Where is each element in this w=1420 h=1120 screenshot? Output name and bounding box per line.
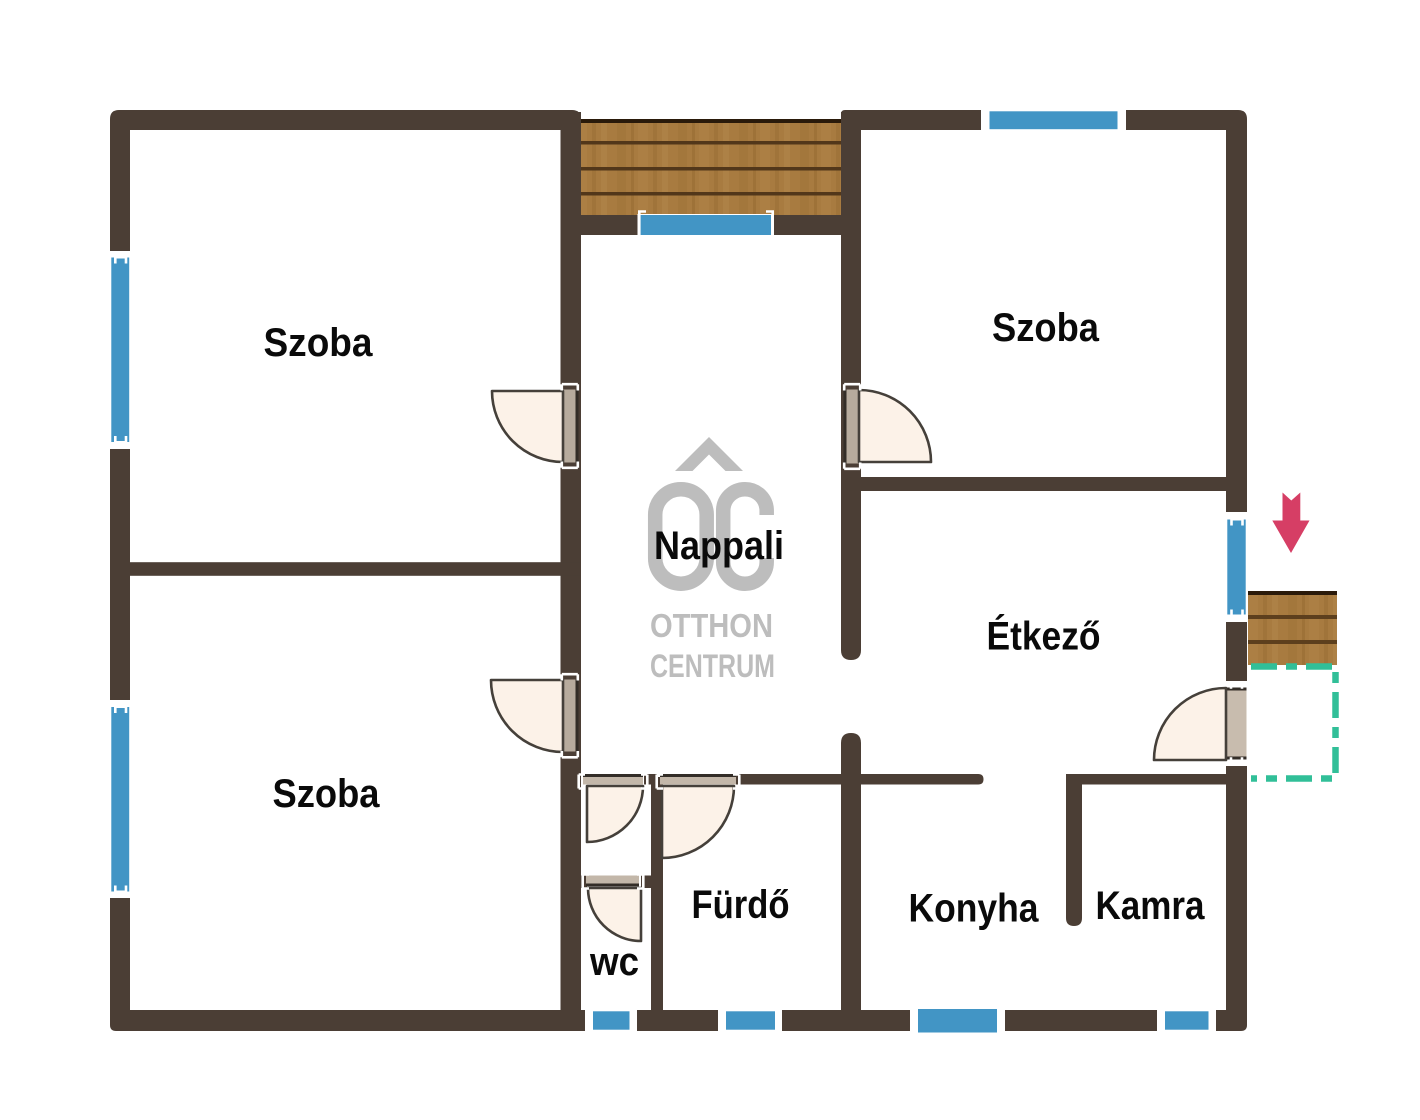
svg-text:CENTRUM: CENTRUM	[650, 648, 775, 684]
svg-text:Szoba: Szoba	[992, 306, 1100, 350]
svg-text:Fürdő: Fürdő	[692, 883, 790, 927]
svg-text:Nappali: Nappali	[654, 524, 784, 568]
svg-text:Étkező: Étkező	[987, 614, 1101, 659]
svg-text:OTTHON: OTTHON	[650, 608, 773, 645]
svg-text:wc: wc	[589, 940, 639, 984]
svg-text:Szoba: Szoba	[273, 772, 381, 816]
svg-text:Konyha: Konyha	[909, 887, 1040, 931]
svg-text:Kamra: Kamra	[1096, 884, 1206, 928]
svg-text:Szoba: Szoba	[264, 321, 374, 365]
